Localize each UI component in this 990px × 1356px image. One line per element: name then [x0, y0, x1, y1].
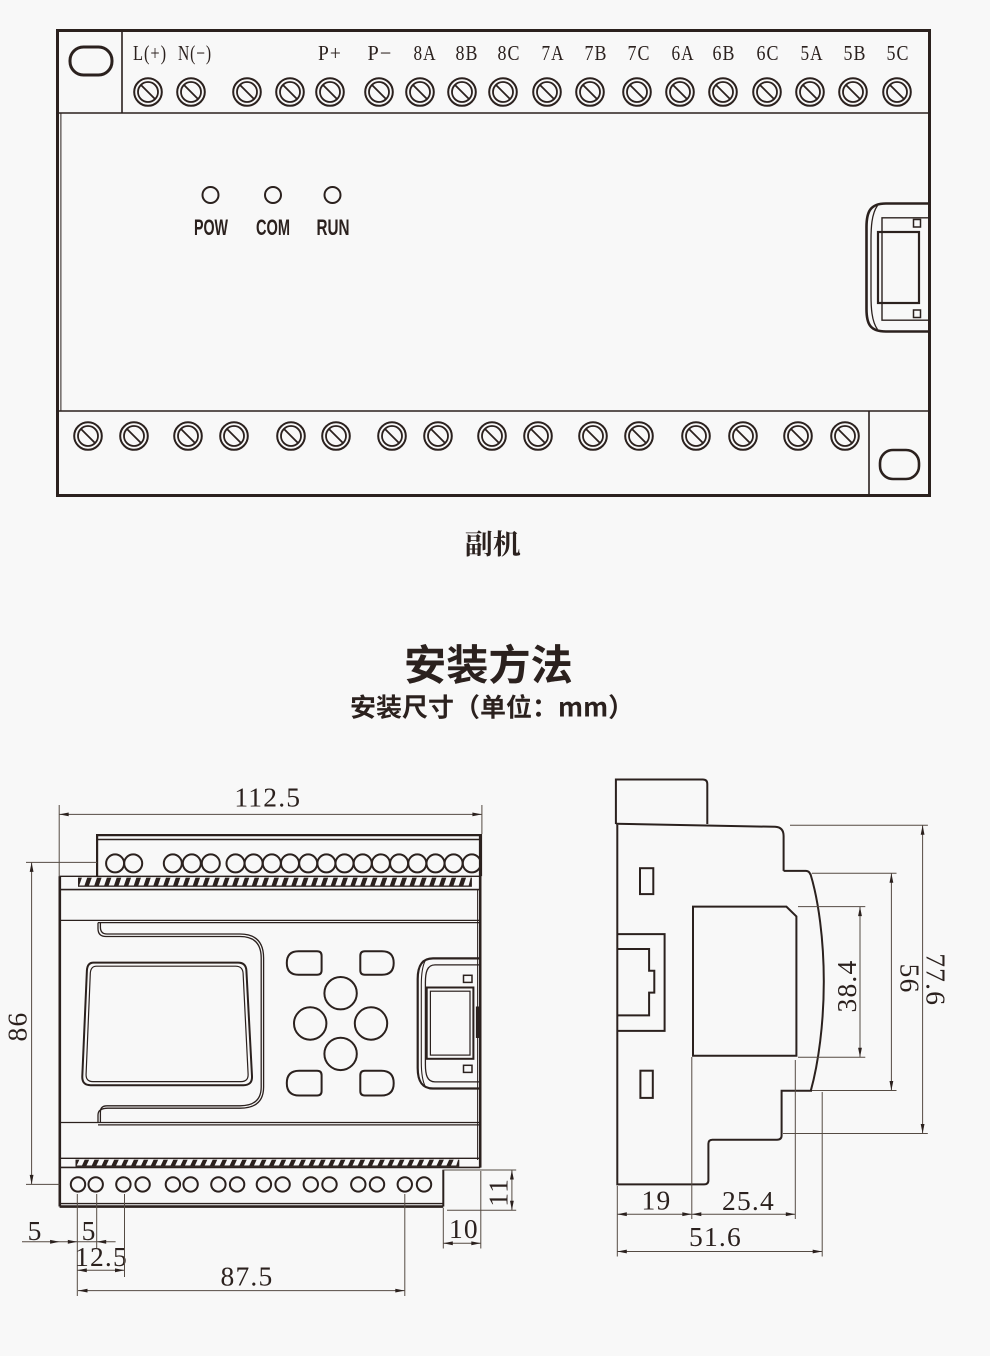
svg-text:5C: 5C [887, 41, 910, 65]
svg-text:7C: 7C [628, 41, 651, 65]
svg-text:POW: POW [194, 215, 228, 240]
svg-text:8B: 8B [456, 41, 479, 65]
svg-text:25.4: 25.4 [722, 1185, 775, 1216]
svg-text:COM: COM [256, 215, 290, 240]
svg-text:5: 5 [28, 1215, 42, 1246]
svg-text:11: 11 [483, 1178, 514, 1207]
svg-text:L(+): L(+) [133, 41, 167, 65]
svg-text:10: 10 [449, 1213, 479, 1244]
svg-text:N(−): N(−) [178, 41, 212, 65]
svg-text:6A: 6A [672, 41, 695, 65]
svg-text:87.5: 87.5 [221, 1261, 274, 1292]
svg-text:51.6: 51.6 [689, 1221, 742, 1252]
svg-text:P−: P− [368, 41, 393, 65]
svg-text:5A: 5A [801, 41, 824, 65]
svg-text:6B: 6B [713, 41, 736, 65]
svg-text:12.5: 12.5 [75, 1241, 128, 1272]
svg-text:112.5: 112.5 [234, 782, 301, 813]
svg-text:77.6: 77.6 [921, 953, 952, 1006]
svg-text:7A: 7A [542, 41, 565, 65]
svg-text:8A: 8A [414, 41, 437, 65]
svg-text:5B: 5B [844, 41, 867, 65]
svg-text:7B: 7B [585, 41, 608, 65]
svg-text:RUN: RUN [317, 215, 350, 240]
svg-text:19: 19 [642, 1185, 672, 1216]
svg-text:6C: 6C [757, 41, 780, 65]
svg-text:8C: 8C [498, 41, 521, 65]
svg-text:P+: P+ [318, 41, 342, 65]
svg-text:38.4: 38.4 [831, 960, 862, 1013]
svg-text:86: 86 [2, 1012, 33, 1042]
